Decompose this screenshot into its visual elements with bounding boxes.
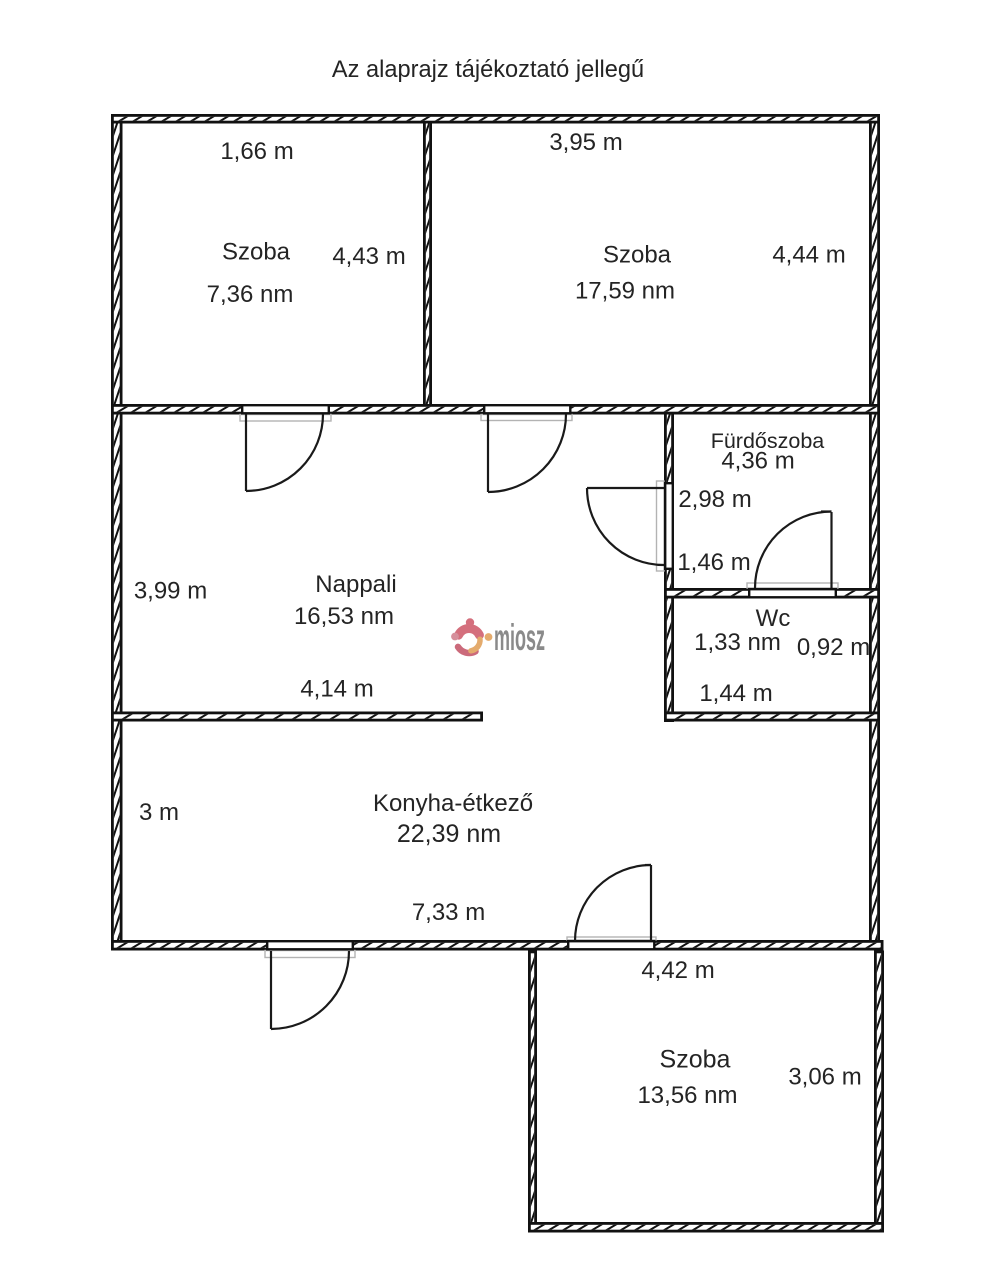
svg-text:17,59 nm: 17,59 nm [575,278,675,305]
svg-text:4,36 m: 4,36 m [721,448,794,475]
svg-text:Szoba: Szoba [603,242,672,269]
svg-text:1,44 m: 1,44 m [699,680,772,707]
svg-text:3,06 m: 3,06 m [788,1064,861,1091]
svg-text:4,44 m: 4,44 m [772,242,845,269]
svg-text:Az alaprajz tájékoztató jelleg: Az alaprajz tájékoztató jellegű [332,57,644,83]
svg-text:7,33 m: 7,33 m [412,899,485,926]
svg-text:16,53 nm: 16,53 nm [294,603,394,630]
svg-text:7,36 nm: 7,36 nm [207,281,294,308]
svg-text:1,33 nm: 1,33 nm [694,629,781,656]
svg-text:13,56 nm: 13,56 nm [637,1082,737,1109]
svg-text:3,95 m: 3,95 m [549,129,622,156]
svg-text:miosz: miosz [494,617,545,658]
svg-text:Szoba: Szoba [660,1046,731,1074]
svg-text:4,43 m: 4,43 m [332,243,405,270]
svg-text:Wc: Wc [756,605,791,632]
svg-text:4,14 m: 4,14 m [300,676,373,703]
svg-text:Nappali: Nappali [315,571,396,598]
svg-text:1,46 m: 1,46 m [677,549,750,576]
svg-text:22,39 nm: 22,39 nm [397,820,501,848]
svg-text:2,98 m: 2,98 m [678,486,751,513]
svg-text:3,99 m: 3,99 m [134,578,207,605]
svg-text:1,66 m: 1,66 m [220,138,293,165]
svg-text:Szoba: Szoba [222,239,291,266]
svg-text:4,42 m: 4,42 m [641,957,714,984]
svg-text:Konyha-étkező: Konyha-étkező [373,790,533,817]
svg-text:0,92 m: 0,92 m [797,634,870,661]
svg-text:3 m: 3 m [139,799,179,826]
